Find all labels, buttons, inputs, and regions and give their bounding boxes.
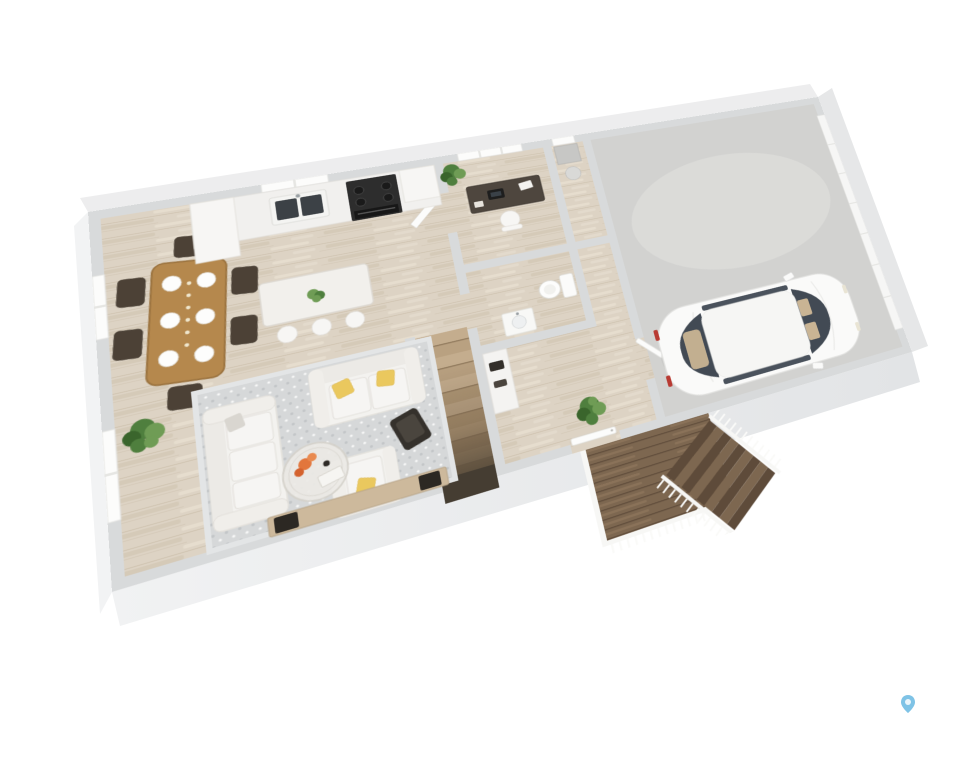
floor-plan-scene	[0, 0, 960, 720]
upper-cabinet	[399, 165, 440, 202]
watermark	[900, 694, 916, 714]
yellow-pillow	[376, 370, 394, 387]
dining-chair	[112, 329, 142, 362]
dining-chair	[231, 266, 257, 295]
sofa	[202, 394, 289, 534]
furnace	[554, 143, 582, 164]
kitchen-cabinet-left	[190, 197, 241, 264]
dining-chair	[116, 277, 146, 308]
side-mirror	[813, 363, 824, 369]
map-pin-hole	[905, 699, 911, 705]
dining-chair	[231, 314, 258, 345]
map-pin-icon	[900, 694, 916, 714]
